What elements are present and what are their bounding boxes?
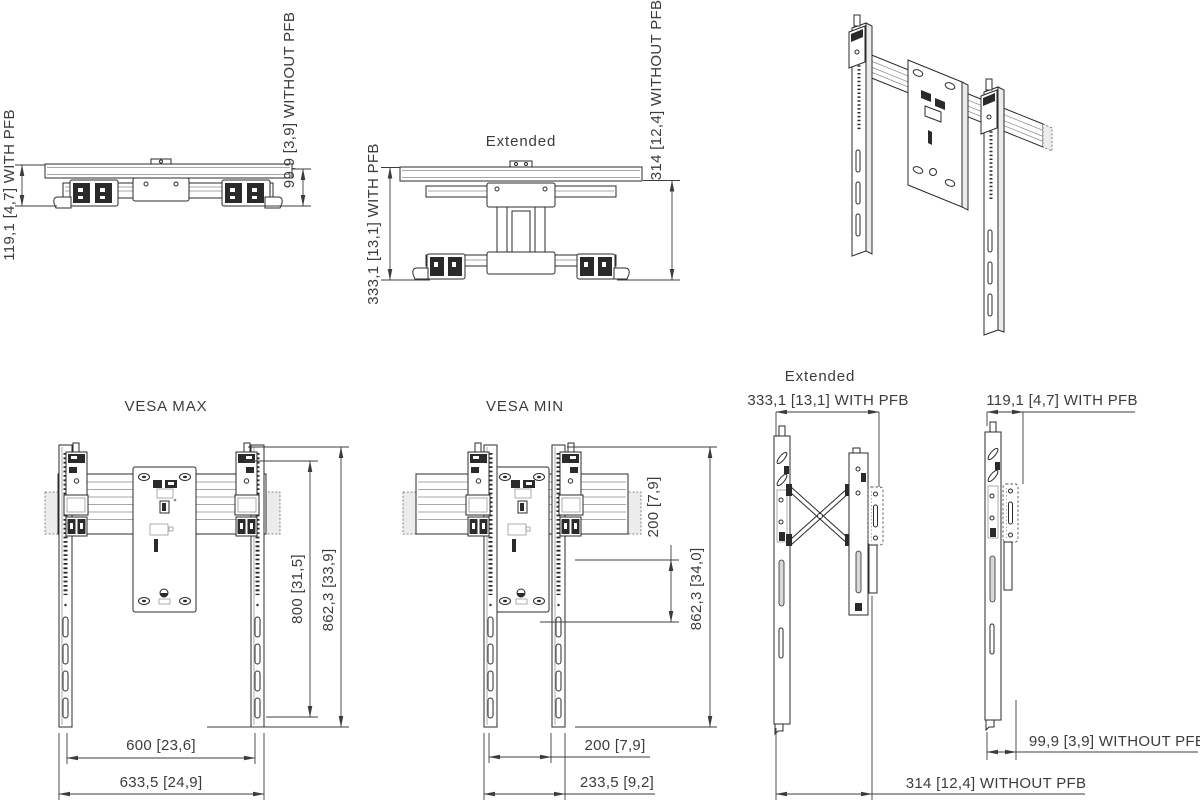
dim-label-with-pfb: 119,1 [4,7] WITH PFB xyxy=(1,109,18,261)
hook-bracket-right xyxy=(559,443,583,536)
dim-label-without-pfb: 99,9 [3,9] WITHOUT PFB xyxy=(281,12,298,188)
display-rail-side xyxy=(849,448,868,615)
dimension-depth-without-pfb: 99,9 [3,9] WITHOUT PFB xyxy=(987,700,1200,760)
center-plate xyxy=(908,60,968,210)
hook-cluster-left xyxy=(70,180,118,206)
wall-hook-right xyxy=(614,268,629,279)
view-title: Extended xyxy=(785,368,856,385)
dim-label-height-outer: 862,3 [33,9] xyxy=(320,549,337,632)
dim-label-top: 119,1 [4,7] WITH PFB xyxy=(986,392,1138,409)
hook-bracket-right xyxy=(235,443,259,536)
dim-label-height-inner: 800 [31,5] xyxy=(289,554,306,624)
view-isometric xyxy=(849,15,1052,335)
center-plate xyxy=(133,467,196,612)
dim-label-with-pfb: 333,1 [13,1] WITH PFB xyxy=(365,143,382,304)
scissor-arms xyxy=(786,484,851,546)
wall-rail-assembly xyxy=(54,178,282,208)
view-top-folded: 119,1 [4,7] WITH PFB 99,9 [3,9] WITHOUT … xyxy=(1,12,311,261)
display-rail xyxy=(400,161,642,181)
extension-mechanism xyxy=(413,183,629,279)
pfb-bracket xyxy=(868,487,883,545)
dimension-width-inner: 200 [7,9] xyxy=(489,733,650,763)
dim-label-without-pfb: 314 [12,4] WITHOUT PFB xyxy=(648,0,665,180)
hook-cluster-right xyxy=(577,254,615,279)
view-vesa-max: VESA MAX 800 [31,5] xyxy=(45,398,349,800)
hook-cluster-right xyxy=(222,180,270,206)
center-plate xyxy=(495,467,549,612)
view-title: VESA MAX xyxy=(124,398,207,415)
wall-hook-left xyxy=(413,268,428,279)
hook-cluster-left xyxy=(427,254,465,279)
display-rail xyxy=(45,159,292,178)
technical-drawing: 119,1 [4,7] WITH PFB 99,9 [3,9] WITHOUT … xyxy=(0,0,1200,802)
dim-label-width-outer: 233,5 [9,2] xyxy=(580,774,654,791)
bracket-arm xyxy=(869,545,877,593)
view-side-folded: 119,1 [4,7] WITH PFB 99,9 [3,9] WITHOUT … xyxy=(985,392,1200,760)
dim-label-width-inner: 200 [7,9] xyxy=(584,737,645,754)
hook-bracket-left xyxy=(64,443,88,536)
dim-label-bottom: 99,9 [3,9] WITHOUT PFB xyxy=(1029,733,1200,750)
dim-label-top: 333,1 [13,1] WITH PFB xyxy=(747,392,908,409)
pfb-bracket xyxy=(1003,484,1018,542)
dimension-without-pfb: 314 [12,4] WITHOUT PFB xyxy=(617,0,680,280)
view-title: VESA MIN xyxy=(486,398,564,415)
wall-rail-side xyxy=(774,426,790,734)
vertical-rail-right xyxy=(981,79,1004,335)
dim-label-width-outer: 633,5 [24,9] xyxy=(120,774,203,791)
dim-label-bottom: 314 [12,4] WITHOUT PFB xyxy=(906,775,1087,792)
dimension-with-pfb: 119,1 [4,7] WITH PFB xyxy=(1,109,57,261)
dim-label-width-inner: 600 [23,6] xyxy=(126,737,196,754)
dimension-width-inner: 600 [23,6] xyxy=(67,733,255,764)
dim-label-height-inner: 200 [7,9] xyxy=(645,476,662,537)
view-title: Extended xyxy=(486,133,557,150)
dimension-depth-without-pfb: 314 [12,4] WITHOUT PFB xyxy=(776,596,1086,800)
dimension-depth-with-pfb: 119,1 [4,7] WITH PFB xyxy=(986,392,1138,484)
dimension-depth-with-pfb: 333,1 [13,1] WITH PFB xyxy=(747,392,908,487)
view-top-extended: Extended xyxy=(365,0,680,305)
hook-bracket-left xyxy=(466,443,490,536)
view-vesa-min: VESA MIN 200 [7,9] xyxy=(403,398,717,800)
bracket-arm xyxy=(1004,542,1012,590)
vertical-rail-left xyxy=(849,15,872,256)
wall-rail-side xyxy=(985,422,1001,730)
dim-label-height-outer: 862,3 [34,0] xyxy=(688,548,705,631)
